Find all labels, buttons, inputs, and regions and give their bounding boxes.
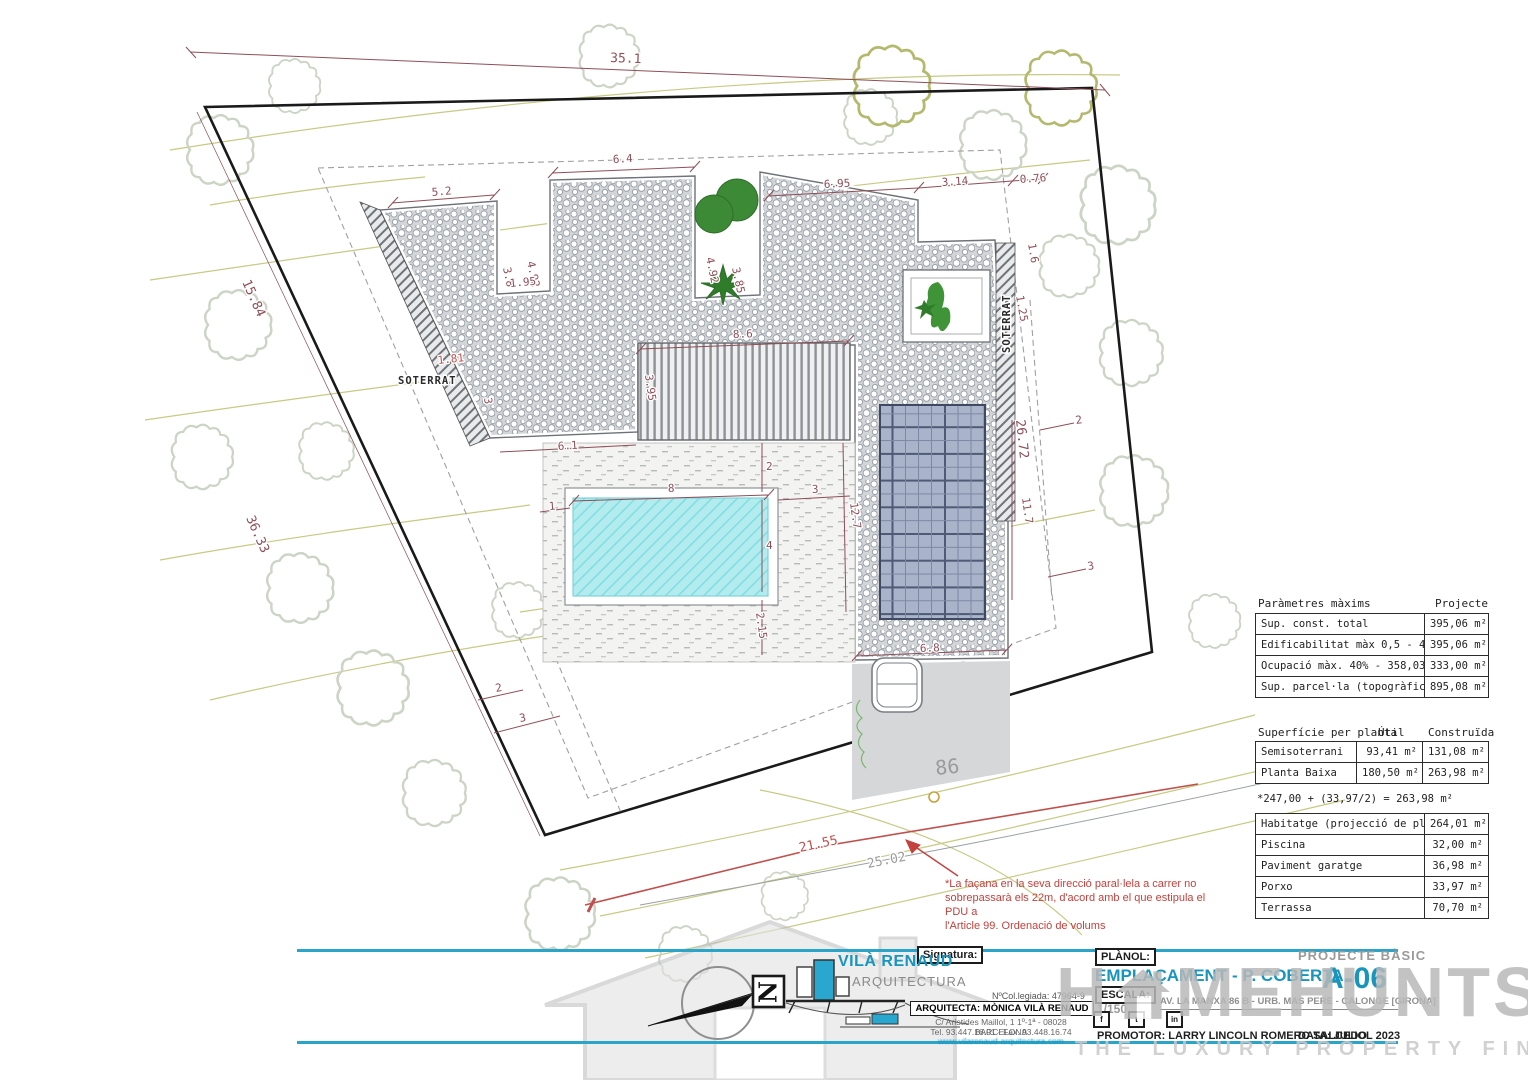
table-row: Sup. parcel·la (topogràfic) 895,08 m²: [1256, 676, 1488, 697]
dim-label: 0.76: [1019, 171, 1046, 186]
regulation-note: *La façana en la seva direcció paral·lel…: [945, 877, 1213, 933]
table-col-projecte: Projecte: [1424, 597, 1488, 610]
dim-label: 1.25: [1013, 294, 1030, 322]
table-superficies: Habitatge (projecció de plantes) 264,01 …: [1255, 813, 1489, 919]
watermark-house-glyph-icon: [1112, 961, 1174, 1023]
table-col-construida: Construïda: [1428, 726, 1494, 739]
dim-label: 35.1: [610, 51, 642, 67]
dim-label: 11.7: [1019, 497, 1036, 525]
table-row: Semisoterrani 93,41 m² 131,08 m²: [1256, 742, 1488, 762]
note-line: l'Article 99. Ordenació de volums: [945, 919, 1213, 933]
table-row: Porxo 33,97 m²: [1256, 876, 1488, 897]
watermark-tagline: THE LUXURY PROPERTY FINDERS: [1075, 1038, 1528, 1061]
dim-label: 8.6: [733, 327, 753, 341]
dim-label: 3.14: [941, 174, 969, 189]
dim-label: 6.8: [920, 641, 940, 655]
dim-label: 2: [1075, 413, 1083, 427]
note-line: *La façana en la seva direcció paral·lel…: [945, 877, 1213, 891]
table-parametres-maxims: Sup. const. total 395,06 m² Edificabilit…: [1255, 613, 1489, 698]
logo-name: VILÀ RENAUD: [838, 953, 953, 971]
swimming-pool: [573, 498, 768, 596]
dim-label: 8: [668, 482, 675, 495]
dim-label: 1.81: [437, 351, 465, 367]
table-row: Ocupació màx. 40% - 358,03 m² 333,00 m²: [1256, 655, 1488, 676]
solar-panel-array: [880, 405, 985, 619]
soterrat-label-right: SOTERRAT: [1001, 294, 1013, 353]
table-title-parametres: Paràmetres màxims: [1258, 597, 1371, 610]
soterrat-label-left: SOTERRAT: [398, 375, 457, 387]
courtyard-right: [903, 270, 990, 342]
table-row: Edificabilitat màx 0,5 - 447,54 m² 395,0…: [1256, 634, 1488, 655]
dim-label: 3: [812, 483, 819, 496]
table-row: Sup. const. total 395,06 m²: [1256, 614, 1488, 634]
dim-label: 6.4: [612, 152, 633, 166]
table-row: Piscina 32,00 m²: [1256, 834, 1488, 855]
car-icon: [872, 658, 922, 712]
dim-label: 1: [548, 500, 556, 513]
dim-label: 3: [518, 711, 527, 725]
table-footnote: *247,00 + (33,97/2) = 263,98 m²: [1257, 793, 1453, 805]
architectural-site-plan-page: 35.1 15.84 36.33 26.72 21.55 25.02 5.2 6…: [0, 0, 1528, 1080]
dim-label: 2: [766, 460, 773, 473]
dim-label: 36.33: [242, 514, 272, 556]
dim-label: 2: [494, 681, 503, 695]
homehunts-watermark: H MEHUNTS: [1056, 952, 1528, 1032]
plot-number-label: 86: [934, 754, 960, 780]
table-title-superficie: Superfície per planta: [1258, 726, 1397, 739]
table-row: Habitatge (projecció de plantes) 264,01 …: [1256, 814, 1488, 834]
watermark-text: MEHUNTS: [1176, 952, 1528, 1032]
dim-label: 1.95: [509, 275, 537, 290]
pergola-roof: [638, 343, 850, 440]
dim-label: 15.84: [238, 278, 268, 320]
architect-website: www.vilarenaud-arquitectura.com: [910, 1036, 1092, 1046]
dim-label: 4.92: [703, 256, 721, 285]
garage-driveway: [852, 658, 1010, 800]
dim-label: 21.55: [798, 833, 839, 856]
table-row: Planta Baixa 180,50 m² 263,98 m²: [1256, 762, 1488, 783]
watermark-text: H: [1056, 952, 1110, 1032]
note-line: sobrepassarà els 22m, d'acord amb el que…: [945, 891, 1213, 919]
dim-label: 6.1: [557, 439, 578, 453]
table-row: Paviment garatge 36,98 m²: [1256, 855, 1488, 876]
table-col-util: Útil: [1378, 726, 1405, 739]
dim-label: 5.2: [431, 184, 452, 199]
table-superficie-per-planta: Semisoterrani 93,41 m² 131,08 m² Planta …: [1255, 741, 1489, 784]
north-letter: N: [754, 981, 783, 1003]
table-row: Terrassa 70,70 m²: [1256, 897, 1488, 918]
logo-sub: ARQUITECTURA: [852, 974, 967, 989]
dim-label: 4: [766, 539, 773, 552]
dim-label: 3: [1087, 559, 1095, 573]
dim-label: 6.95: [823, 177, 850, 191]
dim-label: 25.02: [866, 850, 907, 872]
dim-label: 1.6: [1025, 242, 1041, 264]
courtyard-trees: [695, 179, 758, 305]
